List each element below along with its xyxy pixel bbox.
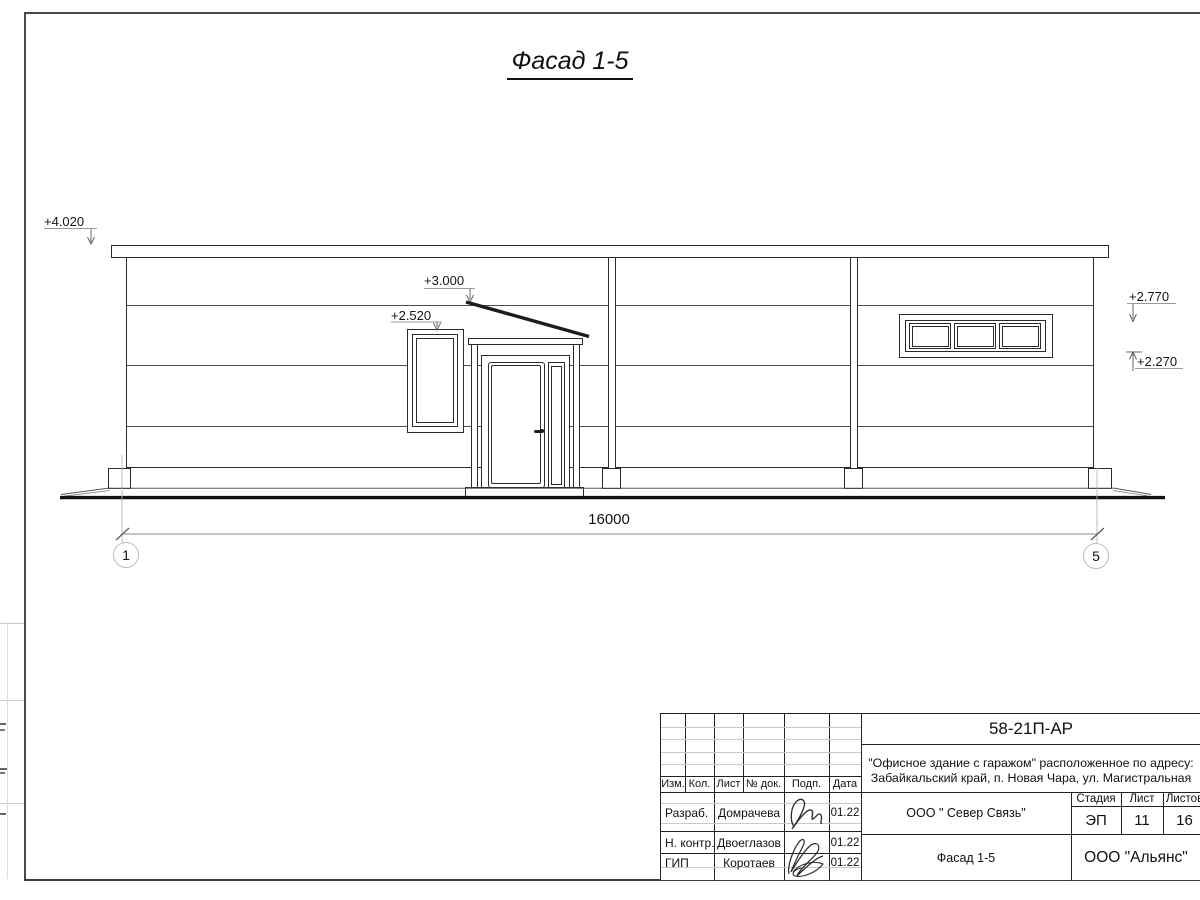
plinth-mid-1 [602, 468, 621, 489]
drawing-title: Фасад 1-5 [460, 48, 680, 78]
tb-stage-label: Стадия [1071, 792, 1121, 806]
pane-glass [1002, 326, 1039, 347]
tb-line [661, 727, 861, 728]
tb-header-data: Дата [829, 776, 861, 792]
elevation-mark-2270: +2.270 [1137, 354, 1177, 369]
tb-header-izm: Изм. [661, 776, 685, 792]
margin-fragment-text [0, 723, 6, 725]
drawing-sheet: { "sheet": { "title": "Фасад 1-5" }, "el… [0, 0, 1200, 900]
tb-date: 01.22 [829, 853, 861, 872]
tb-header-kol: Кол. [685, 776, 714, 792]
entrance-step [465, 487, 584, 498]
drawing-title-text: Фасад 1-5 [507, 47, 632, 80]
tb-name: Коротаев [714, 853, 784, 872]
elev-arrow-down [88, 237, 95, 244]
window-right-frame [905, 320, 1046, 353]
sheet-border-left [24, 12, 26, 881]
door-sidelight [548, 362, 565, 488]
tb-role: Н. контр. [665, 833, 714, 853]
tb-drawing-name-text: Фасад 1-5 [937, 851, 996, 865]
title-block: Изм. Кол. Лист № док. Подп. Дата Разраб.… [660, 713, 1200, 880]
tb-name: Домрачева [714, 803, 784, 823]
tb-sheet-label: Лист [1121, 792, 1163, 806]
door-leaf [488, 362, 545, 488]
door-leaf-inner [491, 365, 541, 484]
ramp-right-1 [1113, 488, 1151, 495]
tb-line [661, 752, 861, 753]
margin-fragment-line [0, 700, 24, 701]
plinth-right [1088, 468, 1112, 489]
window-right-pane [954, 323, 996, 349]
tb-project-name: "Офисное здание с гаражом" расположенное… [861, 747, 1200, 792]
tb-line [861, 744, 1200, 745]
margin-fragment-text [0, 772, 5, 774]
tb-company: ООО "Альянс" [1071, 834, 1200, 881]
portal-post-right [573, 344, 580, 488]
tb-header-podp: Подп. [784, 776, 829, 792]
tb-line [661, 823, 861, 824]
plinth-mid-2 [844, 468, 863, 489]
facade-parapet-cap [111, 245, 1109, 258]
tb-line [661, 739, 861, 740]
tb-drawing-name: Фасад 1-5 [861, 834, 1071, 881]
window-right [899, 314, 1053, 358]
pilaster-right [1093, 258, 1106, 468]
pilaster-left [114, 258, 127, 468]
margin-fragment-text [0, 768, 7, 770]
ramp-right-2 [1113, 491, 1148, 497]
elevation-mark-3000: +3.000 [424, 273, 464, 288]
sheet-border-top [24, 12, 1200, 14]
tb-stage-value: ЭП [1071, 806, 1121, 834]
pilaster-mid-2 [850, 258, 858, 468]
elev-arrow-up [1130, 352, 1137, 360]
pane-glass [912, 326, 949, 347]
dim-tick-left [116, 528, 129, 540]
tb-doc-code-text: 58-21П-АР [989, 719, 1073, 739]
elevation-mark-4020: +4.020 [44, 214, 84, 229]
window-right-pane [909, 323, 951, 349]
window-left-glass [416, 338, 454, 423]
margin-fragment-line [0, 803, 24, 804]
tb-line [661, 831, 861, 832]
tb-header-list: Лист [714, 776, 743, 792]
window-right-pane [999, 323, 1041, 349]
tb-company-text: ООО "Альянс" [1084, 849, 1188, 867]
dimension-text: 16000 [588, 511, 630, 528]
tb-role: Разраб. [665, 803, 714, 823]
tb-date: 01.22 [829, 803, 861, 823]
portal-post-left [471, 344, 478, 488]
grid-bubble-1: 1 [113, 542, 139, 568]
grid-axis-number: 5 [1092, 548, 1100, 564]
margin-fragment-text [0, 813, 6, 815]
door-opening [481, 355, 570, 488]
signature-dvoeglazov-korotaev [783, 834, 831, 882]
grid-bubble-5: 5 [1083, 543, 1109, 569]
ramp-left-2 [64, 491, 110, 497]
tb-project-line2: Забайкальский край, п. Новая Чара, ул. М… [861, 771, 1200, 786]
grid-axis-number: 1 [122, 547, 130, 563]
tb-line [661, 764, 861, 765]
tb-doc-code: 58-21П-АР [861, 714, 1200, 744]
portal-beam [468, 338, 583, 345]
margin-fragment-line [0, 623, 24, 624]
tb-name: Двоеглазов [714, 833, 784, 853]
door-handle-knob [540, 429, 544, 433]
tb-org: ООО " Север Связь" [861, 792, 1071, 834]
tb-sheet-value: 11 [1121, 806, 1163, 834]
dimension-value: 16000 [559, 510, 659, 528]
tb-sheets-value: 16 [1163, 806, 1200, 834]
elev-arrow-down [1130, 314, 1137, 322]
tb-role: ГИП [665, 853, 714, 872]
door-sidelight-inner [551, 366, 562, 485]
ramp-left-1 [61, 488, 110, 495]
margin-fragment-text [0, 729, 5, 731]
plinth-left [108, 468, 131, 489]
tb-org-text: ООО " Север Связь" [906, 806, 1025, 820]
pane-glass [957, 326, 994, 347]
window-left [407, 329, 464, 433]
tb-header-doc: № док. [743, 776, 784, 792]
elevation-mark-2770: +2.770 [1129, 289, 1169, 304]
dim-tick-right [1091, 528, 1104, 540]
margin-fragment-line [7, 623, 8, 879]
tb-date: 01.22 [829, 833, 861, 853]
signature-domracheva [786, 795, 828, 835]
pilaster-mid-1 [608, 258, 616, 468]
tb-sheets-label: Листов [1163, 792, 1200, 806]
tb-project-line1: "Офисное здание с гаражом" расположенное… [861, 756, 1200, 771]
elevation-mark-2520: +2.520 [391, 308, 431, 323]
